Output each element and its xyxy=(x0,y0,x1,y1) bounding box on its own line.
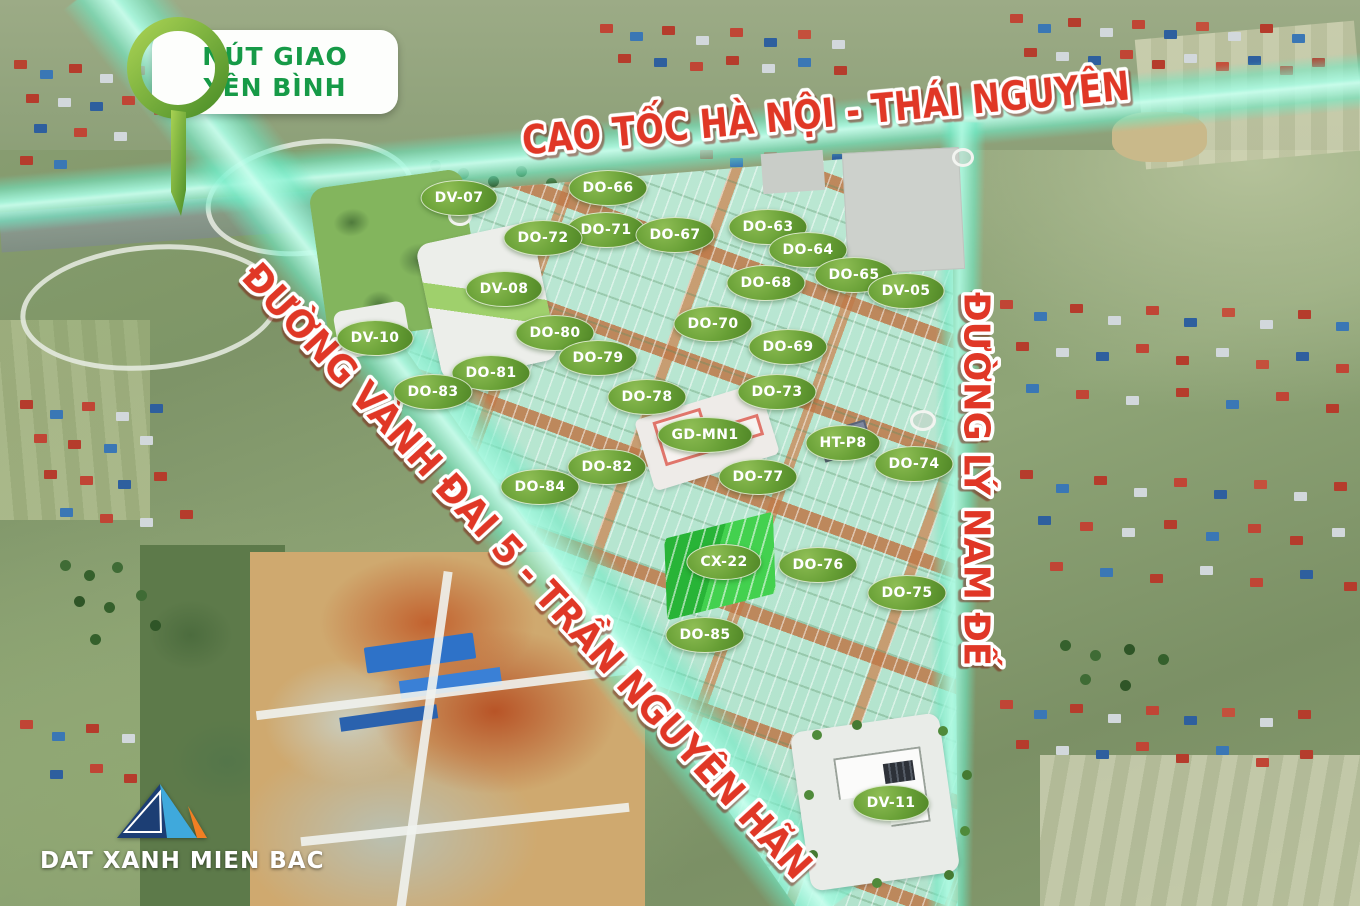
lot-label-do-66: DO-66 xyxy=(568,170,647,206)
lot-label-dv-07: DV-07 xyxy=(421,180,498,216)
lot-label-do-83: DO-83 xyxy=(393,374,472,410)
lot-label-do-70: DO-70 xyxy=(673,306,752,342)
village-roofs-bottom-left xyxy=(20,720,33,729)
dv11-trees xyxy=(812,730,822,740)
lot-label-do-72: DO-72 xyxy=(503,220,582,256)
lot-label-do-68: DO-68 xyxy=(726,265,805,301)
village-roofs-right-mid xyxy=(1020,470,1033,479)
lot-label-do-73: DO-73 xyxy=(737,374,816,410)
lot-label-do-84: DO-84 xyxy=(500,469,579,505)
lot-label-ht-p8: HT-P8 xyxy=(805,425,880,461)
tree-cluster-right xyxy=(1060,640,1071,651)
lot-label-do-79: DO-79 xyxy=(558,340,637,376)
lot-label-gd-mn1: GD-MN1 xyxy=(658,417,753,453)
roundabout-icon-north xyxy=(952,148,974,167)
lot-label-dv-11: DV-11 xyxy=(853,785,930,821)
village-roofs-top-right xyxy=(1010,14,1023,23)
lot-label-do-69: DO-69 xyxy=(748,329,827,365)
developer-logo: DAT XANH MIEN BAC xyxy=(40,782,280,874)
lot-label-dv-08: DV-08 xyxy=(466,271,543,307)
field-bottom-right xyxy=(1040,755,1360,906)
map-pin-icon xyxy=(0,0,280,240)
unbuilt-gray-lots xyxy=(842,147,965,275)
lot-label-do-67: DO-67 xyxy=(635,217,714,253)
developer-logo-text: DAT XANH MIEN BAC xyxy=(40,848,280,874)
village-roofs-right-upper xyxy=(1000,300,1013,309)
lot-label-do-85: DO-85 xyxy=(665,617,744,653)
lot-label-do-75: DO-75 xyxy=(867,575,946,611)
lot-label-do-76: DO-76 xyxy=(778,547,857,583)
lot-label-do-82: DO-82 xyxy=(567,449,646,485)
roundabout-icon-east xyxy=(910,410,936,431)
lot-label-dv-05: DV-05 xyxy=(868,273,945,309)
lot-label-do-78: DO-78 xyxy=(607,379,686,415)
village-roofs-top-center xyxy=(600,24,613,33)
tree-cluster-left xyxy=(60,560,71,571)
unbuilt-gray-lot-small xyxy=(761,150,826,194)
village-roofs-left-mid xyxy=(20,400,33,409)
lot-label-dv-10: DV-10 xyxy=(337,320,414,356)
lot-label-cx-22: CX-22 xyxy=(686,544,761,580)
village-roofs-bottom-right xyxy=(1000,700,1013,709)
lot-label-do-77: DO-77 xyxy=(718,459,797,495)
logo-triangle-icon xyxy=(105,782,215,840)
aerial-masterplan-image: CAO TỐC HÀ NỘI - THÁI NGUYÊN ĐƯỜNG VÀNH … xyxy=(0,0,1360,906)
dv11-solar-grid xyxy=(883,760,915,784)
lot-label-do-74: DO-74 xyxy=(874,446,953,482)
